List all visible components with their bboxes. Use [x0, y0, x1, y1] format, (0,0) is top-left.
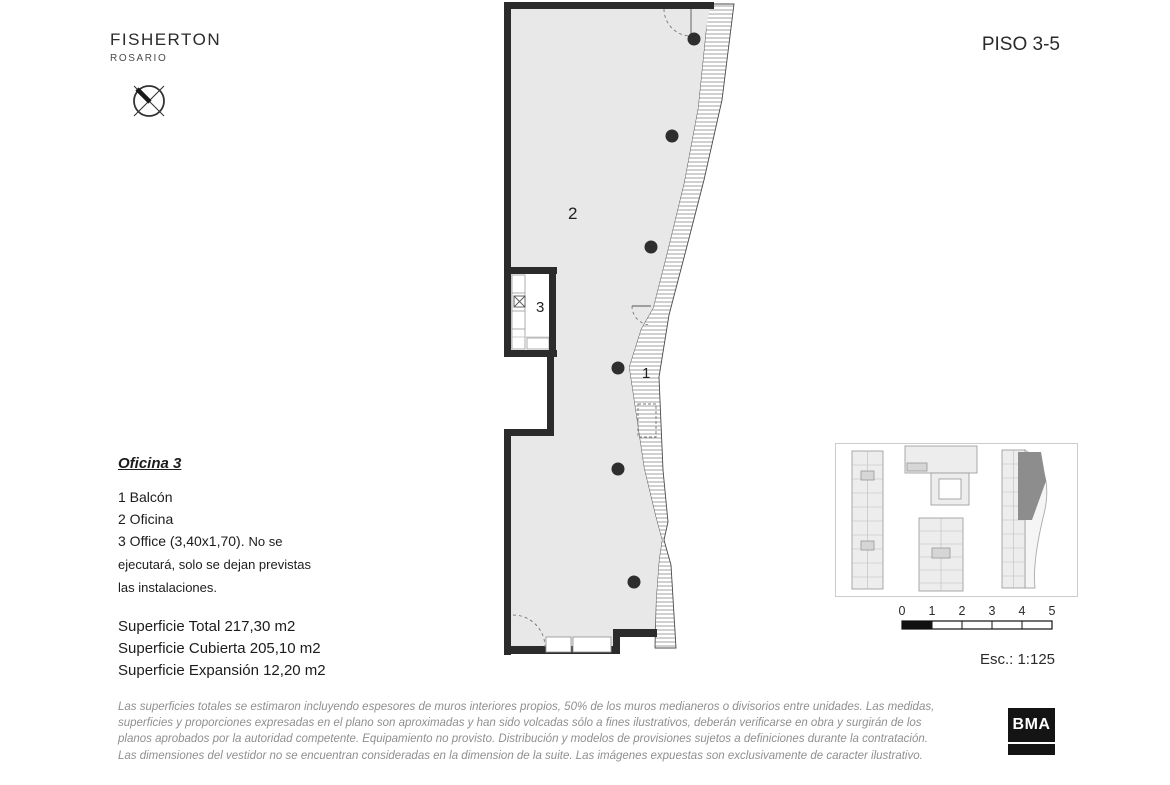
scale-tick-1: 1 — [929, 604, 936, 618]
bottom-openings — [546, 637, 611, 652]
keyplan-building-left — [852, 451, 883, 589]
floor-plan-sheet: FISHERTON ROSARIO PISO 3-5 — [0, 0, 1170, 785]
scale-bar: 0 1 2 3 4 5 — [896, 602, 1058, 636]
disclaimer-line: Las dimensiones del vestidor no se encue… — [118, 748, 948, 764]
north-compass-icon — [126, 78, 172, 124]
scale-tick-2: 2 — [959, 604, 966, 618]
brand-block: FISHERTON ROSARIO — [110, 30, 221, 64]
disclaimer: Las superficies totales se estimaron inc… — [118, 699, 948, 764]
areas-block: Superficie Total 217,30 m2 Superficie Cu… — [118, 616, 328, 682]
legend-item-office: 2 Oficina — [118, 508, 328, 530]
brand-title: FISHERTON — [110, 30, 221, 50]
area-expansion: Superficie Expansión 12,20 m2 — [118, 660, 328, 682]
room-label-office: 2 — [568, 204, 577, 223]
room-label-balcony: 1 — [642, 365, 650, 382]
legend-block: Oficina 3 1 Balcón 2 Oficina 3 Office (3… — [118, 455, 328, 682]
kitchen-cabinet — [527, 338, 549, 349]
appliance-icon — [514, 296, 525, 307]
legend-item-balcony: 1 Balcón — [118, 486, 328, 508]
disclaimer-line: Las superficies totales se estimaron inc… — [118, 699, 948, 715]
area-covered: Superficie Cubierta 205,10 m2 — [118, 638, 328, 660]
scale-label: Esc.: 1:125 — [940, 651, 1055, 668]
key-plan — [835, 443, 1078, 597]
bma-logo-bar — [1008, 744, 1055, 755]
scale-tick-3: 3 — [989, 604, 996, 618]
core-notch — [503, 355, 547, 430]
keyplan-building-center-bottom — [919, 518, 963, 591]
legend-item-kitchen: 3 Office (3,40x1,70). No se ejecutará, s… — [118, 530, 328, 599]
brand-subtitle: ROSARIO — [110, 53, 221, 64]
area-total: Superficie Total 217,30 m2 — [118, 616, 328, 638]
scale-tick-5: 5 — [1049, 604, 1056, 618]
bma-logo-text: BMA — [1008, 708, 1055, 742]
bma-logo: BMA — [1008, 708, 1055, 755]
scale-tick-4: 4 — [1019, 604, 1026, 618]
floor-plan: 2 3 1 — [495, 0, 745, 662]
disclaimer-line: planos aprobados por la autoridad compet… — [118, 731, 948, 747]
kitchen-counter — [512, 275, 525, 349]
room-label-kitchen: 3 — [536, 299, 544, 316]
floor-label: PISO 3-5 — [982, 34, 1060, 56]
disclaimer-line: superficies y proporciones expresadas en… — [118, 715, 948, 731]
scale-tick-0: 0 — [899, 604, 906, 618]
legend-title: Oficina 3 — [118, 455, 328, 472]
